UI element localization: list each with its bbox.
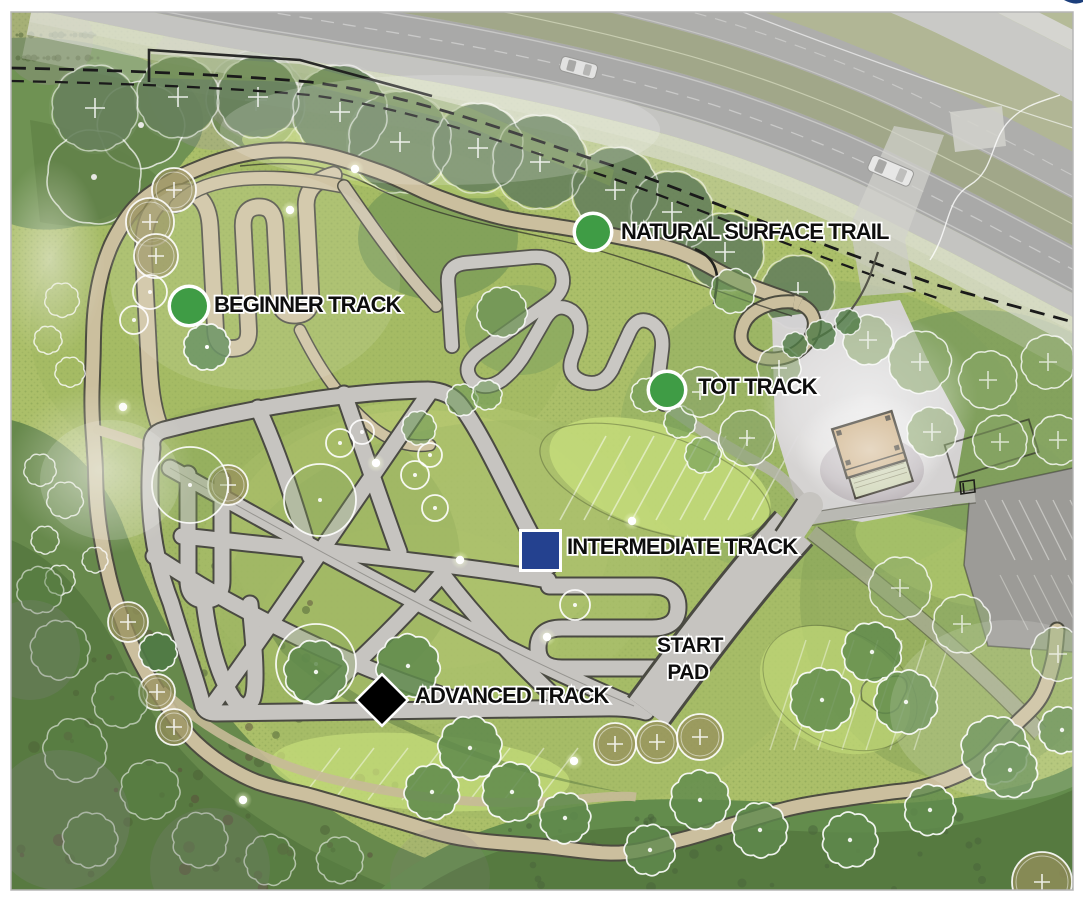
svg-text:NATURAL SURFACE TRAIL: NATURAL SURFACE TRAIL — [621, 219, 889, 244]
svg-text:BEGINNER TRACK: BEGINNER TRACK — [214, 292, 402, 317]
svg-text:START: START — [657, 634, 724, 657]
svg-text:PAD: PAD — [667, 661, 709, 684]
svg-text:TOT TRACK: TOT TRACK — [698, 374, 818, 399]
svg-text:INTERMEDIATE TRACK: INTERMEDIATE TRACK — [567, 534, 798, 559]
svg-text:ADVANCED TRACK: ADVANCED TRACK — [415, 683, 610, 708]
